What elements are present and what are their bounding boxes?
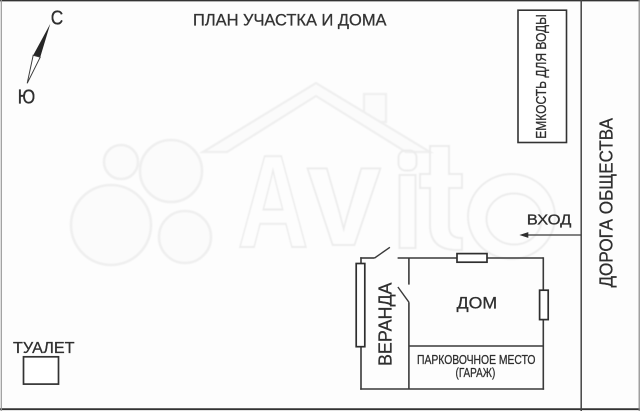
svg-text:ВЕРАНДА: ВЕРАНДА — [375, 282, 396, 366]
svg-text:A: A — [238, 128, 309, 275]
svg-text:ДОМ: ДОМ — [457, 294, 498, 313]
svg-text:Ю: Ю — [18, 87, 36, 109]
svg-text:ЕМКОСТЬ ДЛЯ ВОДЫ: ЕМКОСТЬ ДЛЯ ВОДЫ — [534, 14, 550, 139]
svg-text:С: С — [51, 8, 64, 30]
svg-text:ТУАЛЕТ: ТУАЛЕТ — [13, 340, 75, 357]
svg-text:(ГАРАЖ): (ГАРАЖ) — [456, 365, 496, 380]
svg-text:ДОРОГА ОБЩЕСТВА: ДОРОГА ОБЩЕСТВА — [596, 117, 617, 287]
svg-text:ПЛАН УЧАСТКА И ДОМА: ПЛАН УЧАСТКА И ДОМА — [193, 12, 387, 30]
svg-text:ВХОД: ВХОД — [527, 212, 572, 229]
svg-text:v: v — [307, 114, 381, 276]
